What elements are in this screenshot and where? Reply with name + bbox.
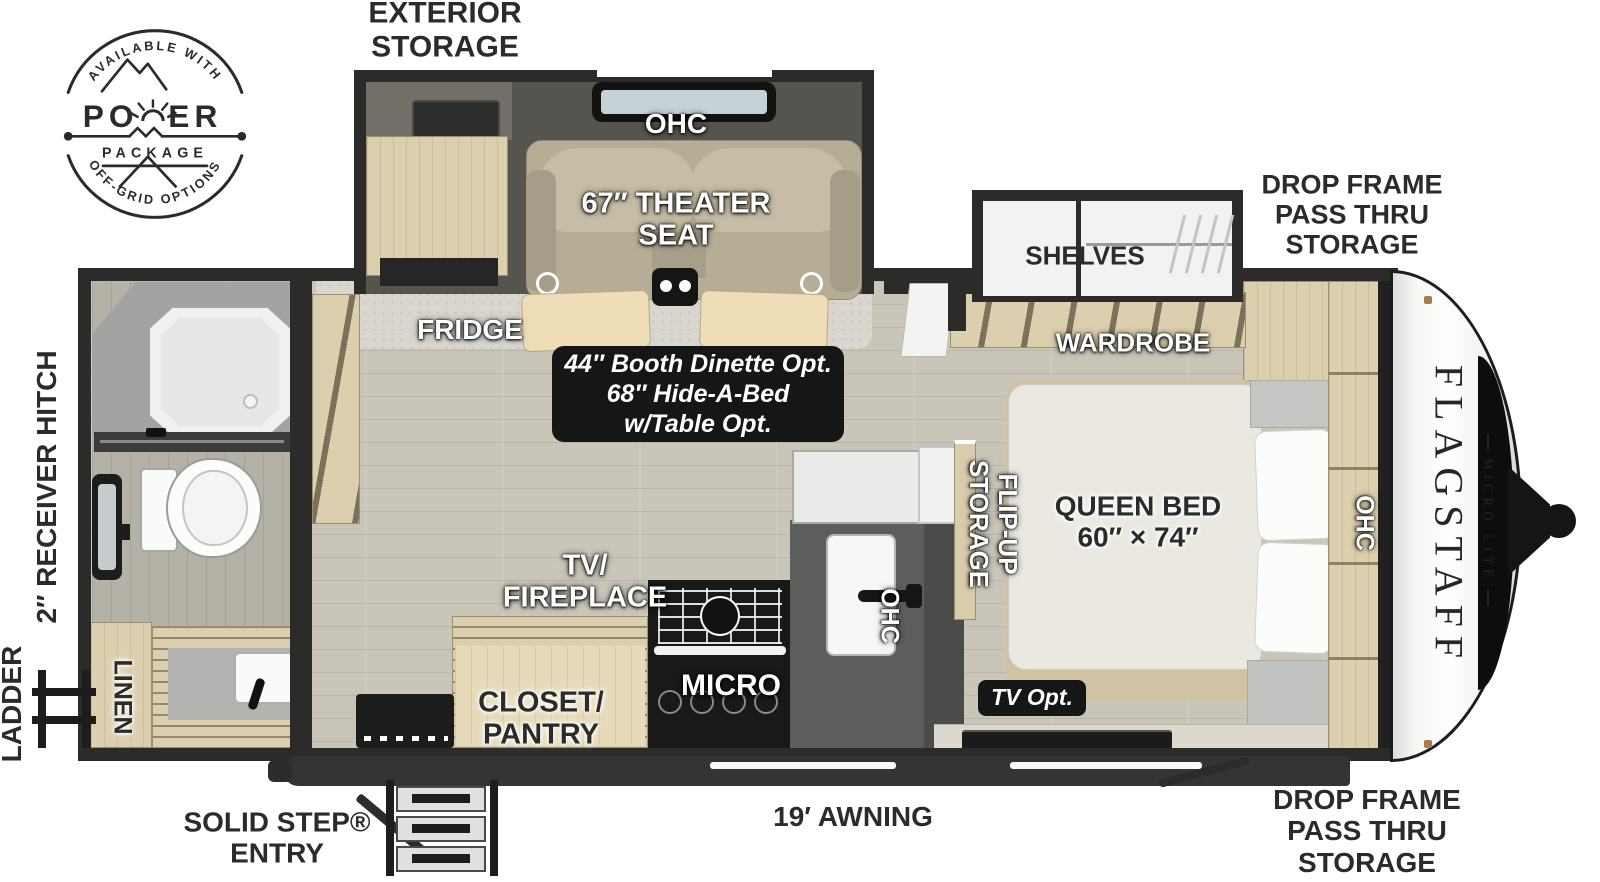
drop-frame-top-line3: STORAGE (1285, 230, 1418, 260)
brand-dash-right (1487, 590, 1489, 606)
floorplan-canvas: AVAILABLE WITH OFF-GRID OPTIONS PO ER PA… (0, 0, 1600, 882)
step-3-tread (412, 854, 470, 863)
flip-up-line1: FLIP-UP (993, 473, 1022, 574)
receiver-hitch-label: 2″ RECEIVER HITCH (31, 350, 63, 623)
dinette-note-line3: w/Table Opt. (624, 409, 772, 439)
cupholder-2 (679, 280, 691, 292)
ladder-label: LADDER (0, 646, 28, 763)
solid-step-line2: ENTRY (230, 838, 324, 869)
awning-stripe-1 (710, 762, 896, 769)
flip-up-line2: STORAGE (964, 460, 993, 588)
tv-fireplace-label: TV/ FIREPLACE (503, 550, 667, 615)
dinette-table-right (699, 290, 829, 352)
sun-icon (143, 111, 163, 121)
closet-pantry-line1: CLOSET/ (478, 687, 604, 719)
brand-series: MICRO LITE (1480, 434, 1496, 606)
rear-ladder-rung-1 (32, 688, 96, 696)
power-package-badge: AVAILABLE WITH OFF-GRID OPTIONS PO ER PA… (58, 26, 252, 220)
dinette-note-line1: 44″ Booth Dinette Opt. (564, 349, 832, 379)
fridge-label: FRIDGE (417, 314, 523, 346)
drop-frame-bottom-line1: DROP FRAME (1273, 784, 1461, 815)
hitch-jack-wheel (1542, 504, 1576, 538)
theater-seat-line2: SEAT (638, 220, 713, 252)
step-rail-left (386, 780, 394, 876)
roof-vent (412, 100, 500, 138)
exterior-storage-label: EXTERIOR STORAGE (368, 0, 521, 64)
tv-fireplace-line1: TV/ (562, 550, 607, 582)
linen-label: LINEN (108, 660, 137, 735)
exterior-storage-line2: STORAGE (371, 30, 519, 64)
badge-power-right: ER (168, 98, 222, 134)
solid-step-entry-label: SOLID STEP® ENTRY (183, 807, 370, 870)
cupholder-tray (652, 268, 698, 306)
dinette-table-left (521, 290, 651, 352)
drop-frame-top-line1: DROP FRAME (1261, 170, 1442, 200)
step-1-tread (412, 794, 470, 803)
brand-dash-left (1487, 434, 1489, 450)
cap-latch-bottom (1424, 740, 1432, 748)
drop-frame-top-line2: PASS THRU (1275, 200, 1429, 230)
seat-armrest-right (830, 170, 860, 292)
queen-bed-line1: QUEEN BED (1055, 491, 1221, 522)
theater-seat-label: 67″ THEATER SEAT (582, 188, 771, 253)
brand-name: FLAGSTAFF (1426, 365, 1473, 667)
cupholder-1 (660, 280, 672, 292)
queen-bed-label: QUEEN BED 60″ × 74″ (1055, 491, 1221, 554)
ohc-kitchen-label: OHC (875, 588, 904, 644)
solid-step-line1: SOLID STEP® (183, 807, 370, 838)
dinette-note-line2: 68″ Hide-A-Bed (607, 379, 790, 409)
exterior-storage-line1: EXTERIOR (368, 0, 521, 30)
theater-seat-line1: 67″ THEATER (582, 188, 771, 220)
fridge-front (380, 258, 498, 286)
flip-up-storage-label: FLIP-UP STORAGE (964, 460, 1022, 588)
drop-frame-bottom-label: DROP FRAME PASS THRU STORAGE (1273, 784, 1461, 878)
ohc-slide-label: OHC (645, 108, 707, 140)
seat-foot-left (536, 272, 559, 295)
closet-pantry-line2: PANTRY (483, 719, 599, 751)
bath-window-latch (120, 524, 130, 540)
badge-package-text: PACKAGE (102, 146, 208, 162)
bath-window-pane (98, 484, 116, 570)
seat-foot-right (800, 272, 823, 295)
badge-power-left: PO (83, 98, 139, 134)
drop-frame-bottom-line3: STORAGE (1298, 847, 1436, 878)
drop-frame-bottom-line2: PASS THRU (1287, 815, 1447, 846)
tv-opt-text: TV Opt. (991, 684, 1073, 712)
ohc-bed-label: OHC (1350, 495, 1379, 551)
tv-opt-badge: TV Opt. (978, 680, 1086, 716)
rear-ladder-rung-2 (32, 716, 96, 724)
brand-series-text: MICRO LITE (1480, 458, 1496, 582)
rear-ladder-rail-right (82, 670, 90, 748)
rear-ladder-rail-left (38, 670, 46, 748)
fridge-cabinet (366, 136, 508, 276)
micro-label: MICRO (681, 669, 781, 703)
tv-fireplace-line2: FIREPLACE (503, 582, 667, 614)
queen-bed-line2: 60″ × 74″ (1077, 522, 1198, 553)
shelves-label: SHELVES (1025, 241, 1144, 272)
wall-stub-stem (948, 283, 966, 331)
step-2-tread (412, 824, 470, 833)
step-rail-right (490, 780, 498, 876)
awning-label: 19′ AWNING (773, 801, 933, 833)
awning-stripe-2 (1010, 762, 1202, 769)
drop-frame-top-label: DROP FRAME PASS THRU STORAGE (1261, 170, 1442, 261)
closet-pantry-label: CLOSET/ PANTRY (478, 687, 604, 752)
dinette-option-note: 44″ Booth Dinette Opt. 68″ Hide-A-Bed w/… (552, 346, 844, 442)
cap-latch-top (1424, 296, 1432, 304)
awning-end-cap (268, 760, 292, 782)
wardrobe-label: WARDROBE (1056, 328, 1211, 359)
slide-roof-stripe (597, 70, 772, 77)
